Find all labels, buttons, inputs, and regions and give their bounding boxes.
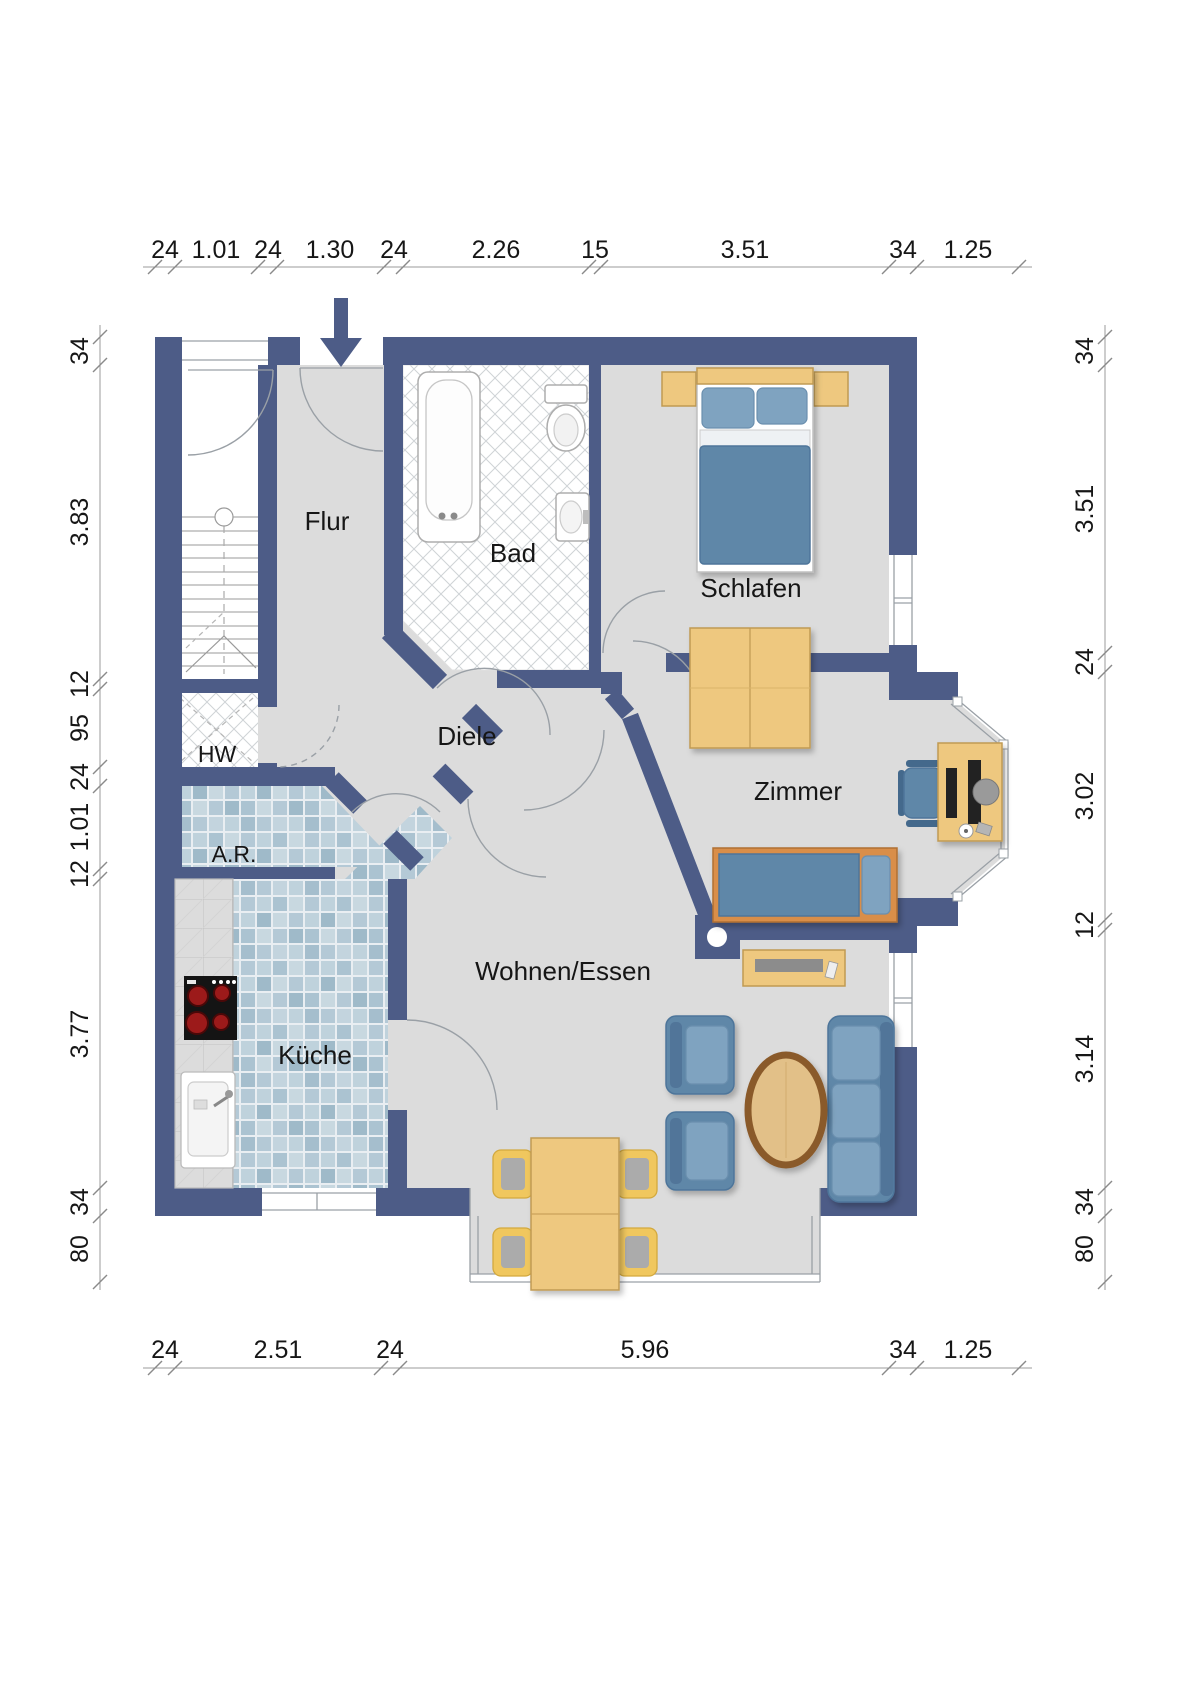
toilet [545,385,587,451]
armchair-1 [666,1016,734,1094]
stove [184,976,237,1040]
single-bed [713,848,897,922]
dim-label-left-9: 80 [66,1235,94,1263]
dim-chain-left: 343.831295241.01123.773480 [66,325,107,1290]
entrance-arrow [320,298,362,367]
wardrobe [690,628,810,748]
nightstand-right [814,372,848,406]
dim-label-left-0: 34 [66,337,94,365]
dining-chair [617,1228,657,1276]
dim-label-bottom-5: 1.25 [944,1336,993,1364]
dim-label-top-3: 1.30 [306,236,355,264]
dim-label-left-4: 24 [66,763,94,791]
nightstand-left [662,372,696,406]
room-label-hw: HW [198,741,237,767]
dim-label-top-1: 1.01 [192,236,241,264]
dim-label-top-5: 2.26 [472,236,521,264]
dining-chair [493,1150,533,1198]
bathtub [418,372,480,542]
dim-label-top-0: 24 [151,236,179,264]
room-label-zimmer: Zimmer [754,776,842,806]
bedroom-window [889,555,917,645]
dim-label-left-5: 1.01 [66,803,94,852]
dim-label-right-0: 34 [1071,337,1099,365]
dining-table [531,1138,619,1290]
dim-label-top-7: 3.51 [721,236,770,264]
room-label-flur: Flur [305,506,350,536]
dim-label-left-7: 3.77 [66,1010,94,1059]
double-bed [697,368,813,572]
dim-label-right-2: 24 [1071,648,1099,676]
sofa [828,1016,894,1202]
dim-label-right-6: 34 [1071,1188,1099,1216]
dim-label-right-4: 12 [1071,911,1099,939]
dim-label-top-9: 1.25 [944,236,993,264]
bathroom-sink [556,493,589,541]
dim-label-bottom-4: 34 [889,1336,917,1364]
dim-label-left-2: 12 [66,670,94,698]
dim-label-left-6: 12 [66,860,94,888]
dim-label-left-3: 95 [66,714,94,742]
dim-chain-bottom: 242.51245.96341.25 [143,1336,1032,1375]
dining-chair [617,1150,657,1198]
dim-label-left-8: 34 [66,1188,94,1216]
dim-label-right-3: 3.02 [1071,772,1099,821]
room-label-ar: A.R. [212,841,257,867]
stair-top-window [182,337,268,365]
dim-label-left-1: 3.83 [66,498,94,547]
dim-label-bottom-1: 2.51 [254,1336,303,1364]
room-label-kueche: Küche [278,1040,352,1070]
room-label-bad: Bad [490,538,536,568]
kitchen-window [262,1188,376,1216]
dim-chain-right: 343.51243.02123.143480 [1071,325,1112,1290]
room-label-diele: Diele [437,721,496,751]
dim-chain-top: 241.01241.30242.26153.51341.25 [143,236,1032,274]
floorplan-page: Flur Bad Schlafen Diele HW A.R. Zimmer K… [0,0,1200,1703]
armchair-2 [666,1112,734,1190]
room-label-schlafen: Schlafen [700,573,801,603]
room-label-wohnen: Wohnen/Essen [475,956,651,986]
dim-label-right-7: 80 [1071,1235,1099,1263]
dim-label-top-6: 15 [581,236,609,264]
dim-label-top-2: 24 [254,236,282,264]
kitchen-floor [233,879,388,1188]
dim-label-right-1: 3.51 [1071,485,1099,534]
dim-label-top-4: 24 [380,236,408,264]
kitchen-sink [181,1072,235,1168]
dim-label-top-8: 34 [889,236,917,264]
dim-label-bottom-3: 5.96 [621,1336,670,1364]
dim-label-bottom-0: 24 [151,1336,179,1364]
desk [938,743,1002,841]
dim-label-right-5: 3.14 [1071,1035,1099,1084]
dim-label-bottom-2: 24 [376,1336,404,1364]
lowboard [743,950,845,986]
floorplan-drawing: Flur Bad Schlafen Diele HW A.R. Zimmer K… [0,0,1200,1703]
coffee-table [748,1055,824,1165]
dining-chair [493,1228,533,1276]
